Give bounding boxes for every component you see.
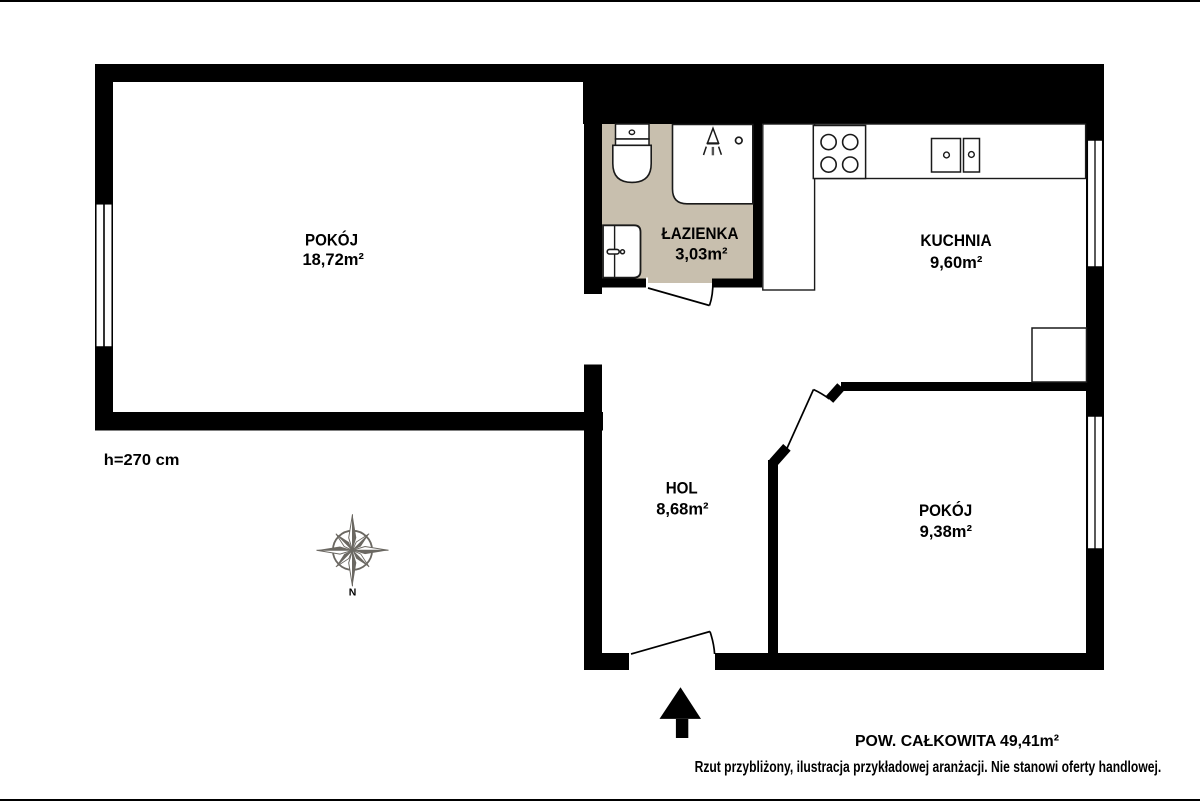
svg-text:KUCHNIA: KUCHNIA xyxy=(920,231,991,250)
svg-text:18,72m²: 18,72m² xyxy=(302,251,364,269)
svg-text:POW. CAŁKOWITA 49,41m²: POW. CAŁKOWITA 49,41m² xyxy=(855,733,1059,750)
svg-text:9,38m²: 9,38m² xyxy=(920,523,973,541)
svg-text:HOL: HOL xyxy=(666,479,698,498)
svg-text:ŁAZIENKA: ŁAZIENKA xyxy=(662,224,739,243)
svg-text:POKÓJ: POKÓJ xyxy=(919,501,972,520)
svg-text:Rzut przybliżony, ilustracja p: Rzut przybliżony, ilustracja przykładowe… xyxy=(695,759,1162,776)
svg-text:8,68m²: 8,68m² xyxy=(656,500,709,518)
svg-text:N: N xyxy=(349,586,357,598)
svg-text:3,03m²: 3,03m² xyxy=(675,245,728,263)
svg-text:h=270 cm: h=270 cm xyxy=(104,452,180,469)
svg-text:9,60m²: 9,60m² xyxy=(930,254,983,272)
svg-text:POKÓJ: POKÓJ xyxy=(305,230,358,249)
